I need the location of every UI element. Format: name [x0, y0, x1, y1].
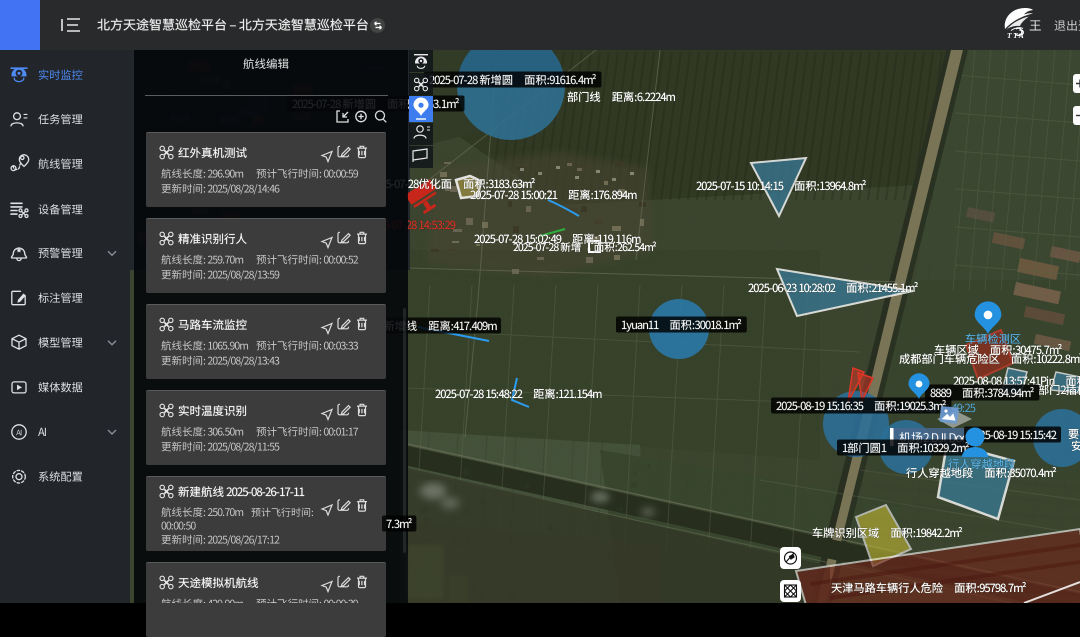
svg-text:TTA: TTA — [1007, 31, 1025, 40]
